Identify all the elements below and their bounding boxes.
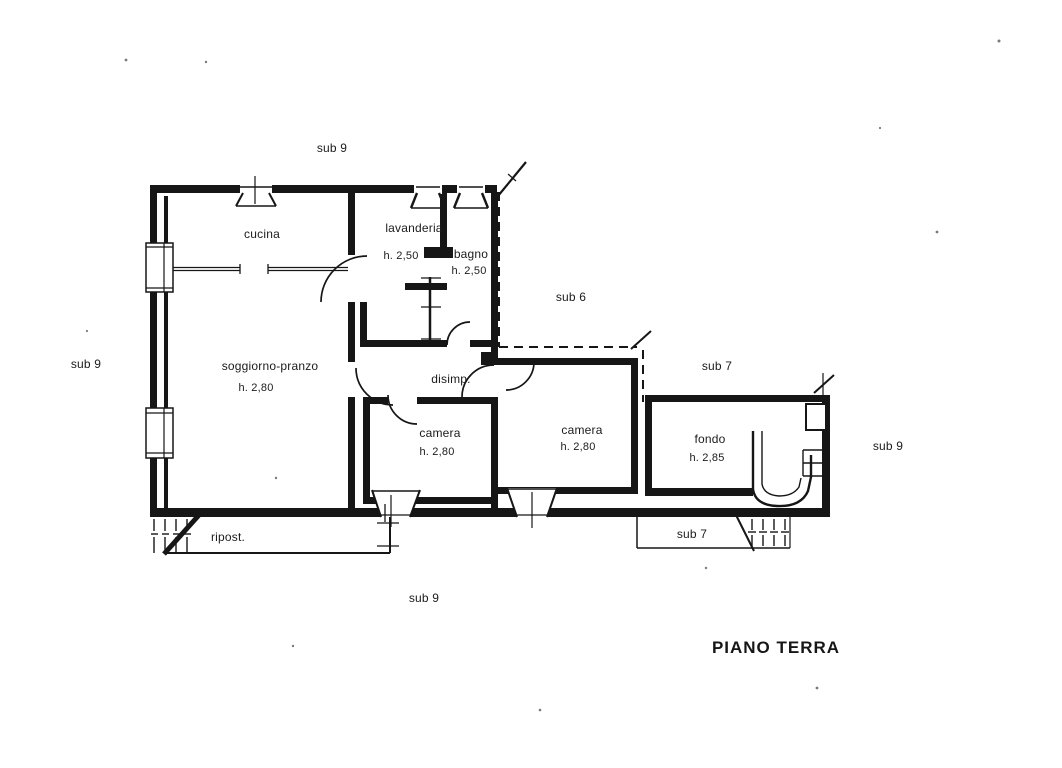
room-label-lavanderia: lavanderia xyxy=(385,221,442,235)
sub9-left-label: sub 9 xyxy=(71,357,101,371)
wall-fondo-bottom xyxy=(645,488,753,496)
sub7-band-label: sub 7 xyxy=(677,527,707,541)
sub9-bottom-label: sub 9 xyxy=(409,591,439,605)
window-top-bagno xyxy=(454,183,488,208)
window-bottom-camera xyxy=(507,488,557,528)
room-label-disimpegno: disimp. xyxy=(431,372,470,386)
window-top-cucina xyxy=(236,176,276,206)
window-bottom-soggiorno xyxy=(372,490,420,527)
room-height-fondo: h. 2,85 xyxy=(689,452,724,464)
door-camera2 xyxy=(506,362,534,390)
sub6-label: sub 6 xyxy=(556,290,586,304)
room-height-camera2: h. 2,80 xyxy=(560,441,595,453)
window-left-lower xyxy=(146,408,173,458)
interior-walls xyxy=(348,192,498,508)
room-height-camera1: h. 2,80 xyxy=(419,446,454,458)
floor-title: PIANO TERRA xyxy=(712,638,840,658)
entrance-door-leaf xyxy=(498,162,526,196)
hatch-area-right xyxy=(748,519,789,546)
wall-left xyxy=(150,185,157,517)
fondo-niche xyxy=(806,404,826,430)
room-label-fondo: fondo xyxy=(694,432,725,446)
wall-camera2-top xyxy=(497,358,638,365)
window-top-lavanderia xyxy=(411,183,445,208)
cucina-counter-divider xyxy=(160,264,348,274)
door-bagno xyxy=(447,322,470,345)
sub9-right-label: sub 9 xyxy=(873,439,903,453)
wall-top xyxy=(150,185,497,193)
room-label-ripostiglio: ripost. xyxy=(211,530,245,544)
window-left-upper xyxy=(146,243,173,292)
floor-plan-drawing xyxy=(0,0,1062,768)
tick-fondo-corner xyxy=(814,375,834,393)
room-height-bagno: h. 2,50 xyxy=(451,265,486,277)
sub7-upper-label: sub 7 xyxy=(702,359,732,373)
room-label-camera1: camera xyxy=(419,426,460,440)
scan-specks xyxy=(86,40,1001,712)
wall-camera2-right xyxy=(631,358,638,494)
wall-fondo-top xyxy=(645,395,830,402)
sub9-top-label: sub 9 xyxy=(317,141,347,155)
corner-ticks xyxy=(631,331,834,403)
room-label-cucina: cucina xyxy=(244,227,280,241)
room-label-soggiorno: soggiorno-pranzo xyxy=(222,359,319,373)
door-lavanderia xyxy=(321,256,367,302)
room-height-lavanderia: h. 2,50 xyxy=(383,250,418,262)
tick-sub6-corner xyxy=(631,331,651,349)
wall-bottom xyxy=(150,508,830,517)
wall-fondo-left xyxy=(645,402,652,496)
floor-plan-sheet: sub 9 sub 9 sub 9 sub 9 sub 6 sub 7 sub … xyxy=(0,0,1062,768)
room-label-camera2: camera xyxy=(561,423,602,437)
fondo-stair xyxy=(753,404,826,506)
sub7-band-outline xyxy=(637,513,790,551)
room-height-soggiorno: h. 2,80 xyxy=(238,382,273,394)
door-camera1 xyxy=(388,395,417,424)
room-label-bagno: bagno xyxy=(454,247,488,261)
